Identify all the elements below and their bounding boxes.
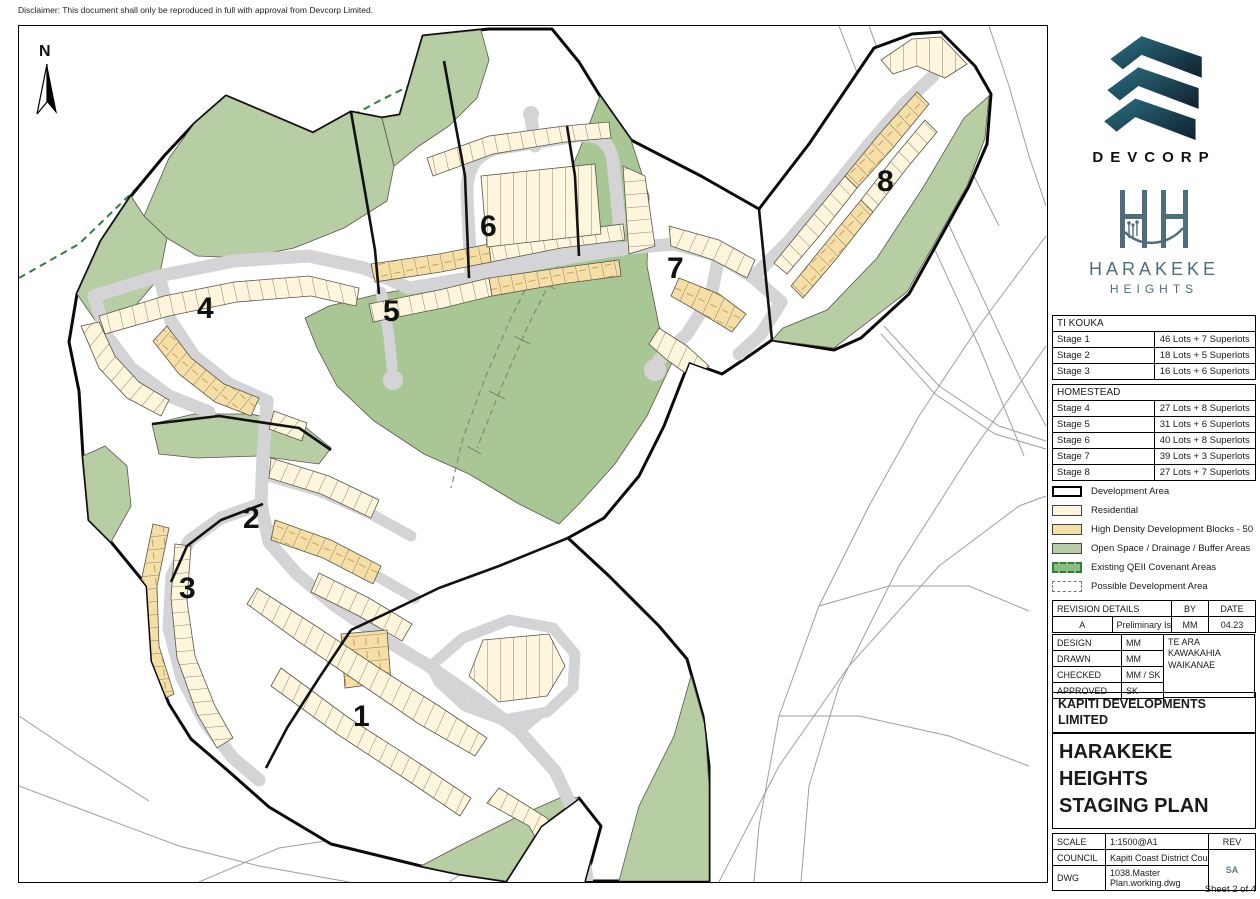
- stage-label-1: 1: [353, 700, 370, 733]
- title-line-1: HARAKEKE: [1059, 739, 1249, 766]
- homestead-title: HOMESTEAD: [1053, 385, 1256, 401]
- staging-plan-map: 1 2 3 4 5 6 7 8 N: [18, 25, 1048, 883]
- stage-label-5: 5: [383, 295, 400, 328]
- stage-label-7: 7: [667, 252, 684, 285]
- title-line-2: HEIGHTS: [1059, 766, 1249, 793]
- drawing-sheet: Disclaimer: This document shall only be …: [0, 0, 1260, 899]
- revision-title: REVISION DETAILS: [1053, 601, 1172, 617]
- stage-label-8: 8: [877, 165, 894, 198]
- title-line-3: STAGING PLAN: [1059, 793, 1249, 820]
- ti-kouka-table: TI KOUKA Stage 1 46 Lots + 7 Superlots S…: [1052, 315, 1256, 380]
- drawing-title-box: HARAKEKE HEIGHTS STAGING PLAN: [1052, 733, 1256, 829]
- stage-label-2: 2: [243, 502, 260, 535]
- legend-swatch-open-space: [1052, 543, 1082, 554]
- table-row: DRAWN MM: [1053, 651, 1164, 667]
- table-row: DESIGN MM: [1053, 635, 1164, 651]
- devcorp-logo-icon: [1102, 32, 1206, 140]
- legend-item: Possible Development Area: [1052, 577, 1256, 596]
- approvals-block: DESIGN MM DRAWN MM CHECKED MM / SK APPRO…: [1052, 634, 1256, 699]
- legend-item: High Density Development Blocks - 50: [1052, 520, 1256, 539]
- table-row: Stage 8 27 Lots + 7 Superlots: [1053, 465, 1256, 481]
- table-row: A Preliminary Issue MM 04.23: [1053, 617, 1256, 633]
- hh-monogram-icon: [1106, 188, 1202, 252]
- legend-swatch-residential: [1052, 505, 1082, 516]
- legend-item: Residential: [1052, 501, 1256, 520]
- drawing-info-table: SCALE 1:1500@A1 REV COUNCIL Kapiti Coast…: [1052, 833, 1256, 891]
- sheet-number: Sheet 2 of 4: [1052, 884, 1256, 895]
- legend-item: Existing QEII Covenant Areas: [1052, 558, 1256, 577]
- legend-swatch-development-area: [1052, 486, 1082, 497]
- revision-table: REVISION DETAILS BY DATE A Preliminary I…: [1052, 600, 1256, 633]
- north-arrow: N: [37, 43, 57, 114]
- ti-kouka-title: TI KOUKA: [1053, 316, 1256, 332]
- legend-item: Development Area: [1052, 482, 1256, 501]
- map-legend: Development Area Residential High Densit…: [1052, 482, 1256, 596]
- table-row: SCALE 1:1500@A1 REV: [1053, 834, 1256, 850]
- table-row: CHECKED MM / SK: [1053, 667, 1164, 683]
- harakeke-wordmark: HARAKEKE: [1052, 259, 1256, 280]
- devcorp-wordmark: DEVCORP: [1052, 149, 1256, 166]
- project-location: TE ARA KAWAKAHIA WAIKANAE: [1164, 634, 1255, 698]
- stage-label-4: 4: [197, 292, 214, 325]
- staging-plan-svg: 1 2 3 4 5 6 7 8 N: [19, 26, 1047, 882]
- table-row: Stage 5 31 Lots + 6 Superlots: [1053, 417, 1256, 433]
- table-row: COUNCIL Kapiti Coast District Council SA: [1053, 850, 1256, 866]
- legend-swatch-high-density: [1052, 524, 1082, 535]
- legend-swatch-possible-development: [1052, 581, 1082, 592]
- legend-item: Open Space / Drainage / Buffer Areas: [1052, 539, 1256, 558]
- table-row: Stage 3 16 Lots + 6 Superlots: [1053, 364, 1256, 380]
- north-label: N: [39, 43, 51, 60]
- approvals-table: DESIGN MM DRAWN MM CHECKED MM / SK APPRO…: [1052, 634, 1164, 699]
- table-row: Stage 4 27 Lots + 8 Superlots: [1053, 401, 1256, 417]
- stage-label-6: 6: [480, 210, 497, 243]
- harakeke-heights-logo: HARAKEKE HEIGHTS: [1052, 188, 1256, 296]
- client-name-box: KAPITI DEVELOPMENTS LIMITED: [1052, 692, 1256, 733]
- table-row: Stage 7 39 Lots + 3 Superlots: [1053, 449, 1256, 465]
- table-row: REVISION DETAILS BY DATE: [1053, 601, 1256, 617]
- devcorp-logo: DEVCORP: [1052, 32, 1256, 166]
- disclaimer-text: Disclaimer: This document shall only be …: [18, 5, 373, 15]
- table-row: Stage 2 18 Lots + 5 Superlots: [1053, 348, 1256, 364]
- heights-wordmark: HEIGHTS: [1052, 282, 1256, 296]
- homestead-table: HOMESTEAD Stage 4 27 Lots + 8 Superlots …: [1052, 384, 1256, 481]
- table-row: Stage 1 46 Lots + 7 Superlots: [1053, 332, 1256, 348]
- stage-label-3: 3: [179, 572, 196, 605]
- legend-swatch-qeii-covenant: [1052, 562, 1082, 573]
- table-row: Stage 6 40 Lots + 8 Superlots: [1053, 433, 1256, 449]
